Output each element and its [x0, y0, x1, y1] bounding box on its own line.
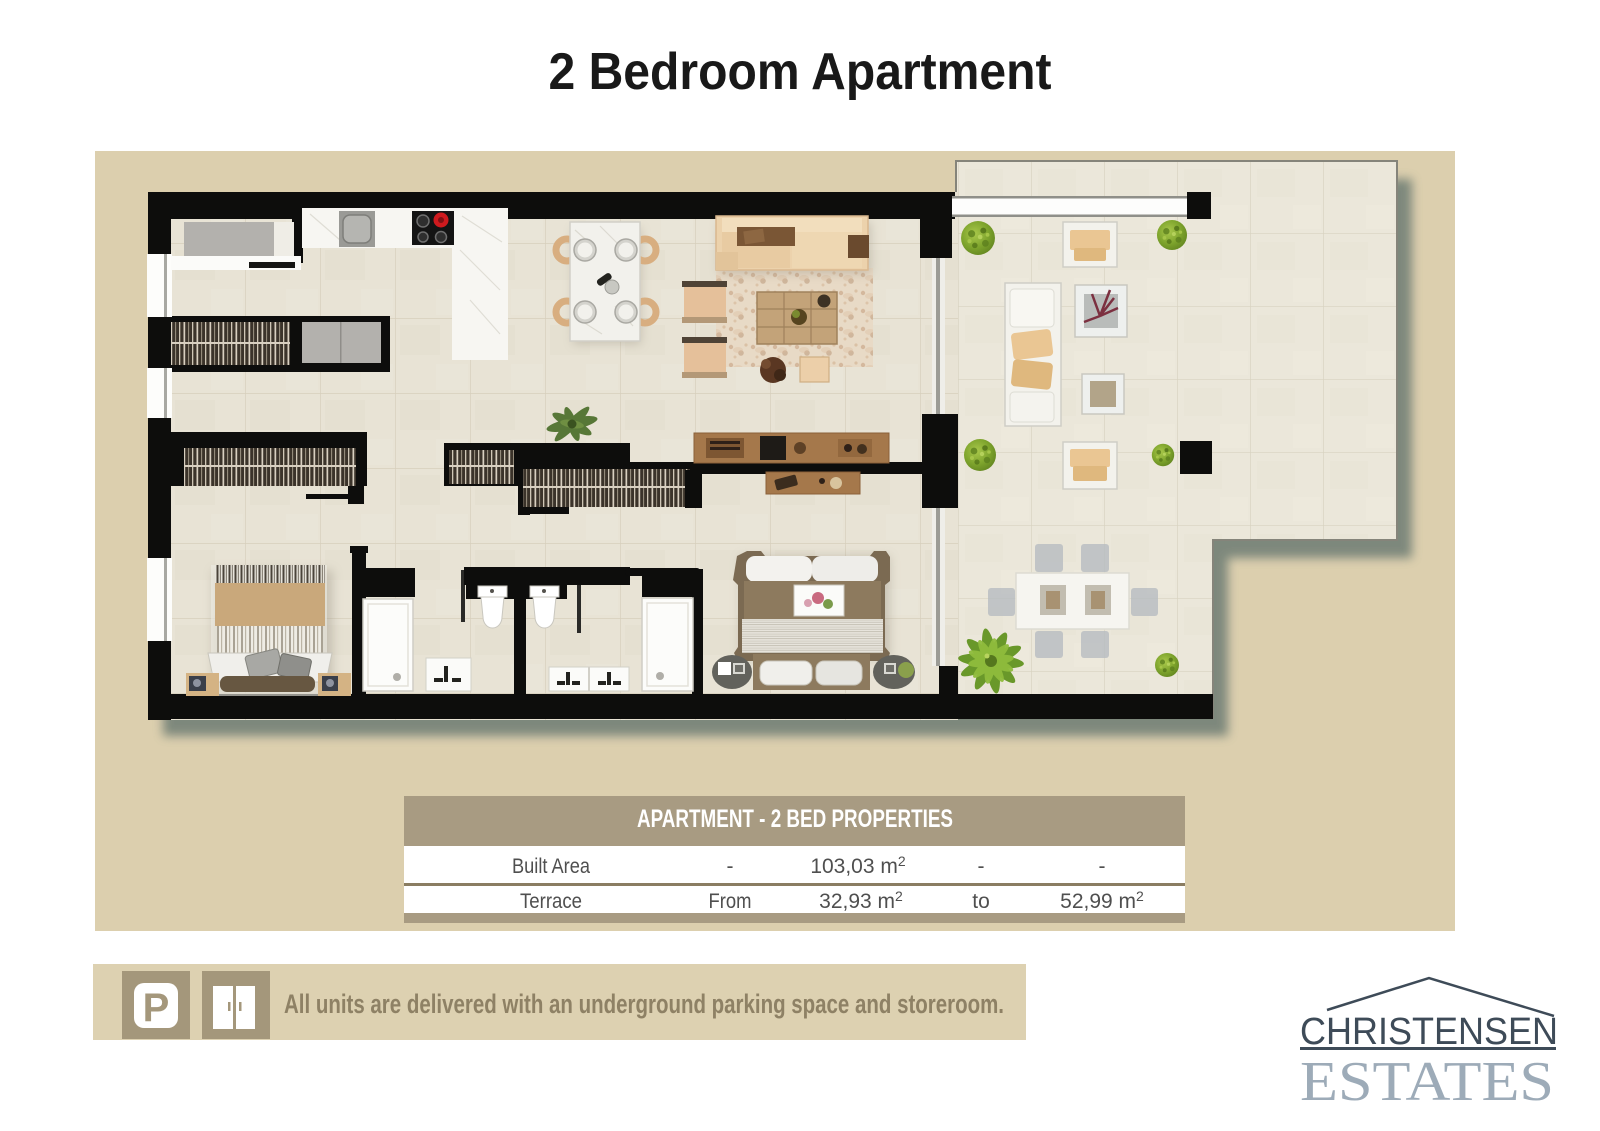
svg-text:32,93 m2: 32,93 m2: [819, 888, 903, 913]
svg-text:-: -: [727, 855, 734, 878]
svg-text:-: -: [978, 855, 985, 878]
svg-text:P: P: [143, 986, 170, 1030]
svg-text:From: From: [709, 890, 752, 913]
svg-text:ESTATES: ESTATES: [1300, 1051, 1554, 1113]
svg-text:52,99 m2: 52,99 m2: [1060, 888, 1144, 913]
svg-text:APARTMENT - 2 BED PROPERTIES: APARTMENT - 2 BED PROPERTIES: [637, 805, 953, 833]
svg-text:Terrace: Terrace: [520, 890, 582, 913]
svg-text:All units are delivered with a: All units are delivered with an undergro…: [284, 989, 1004, 1019]
svg-text:to: to: [972, 890, 990, 913]
svg-text:2 Bedroom Apartment: 2 Bedroom Apartment: [549, 43, 1052, 101]
svg-text:CHRISTENSEN: CHRISTENSEN: [1300, 1011, 1558, 1053]
svg-text:103,03 m2: 103,03 m2: [810, 853, 906, 878]
svg-text:-: -: [1099, 855, 1106, 878]
svg-text:Built Area: Built Area: [512, 855, 590, 878]
